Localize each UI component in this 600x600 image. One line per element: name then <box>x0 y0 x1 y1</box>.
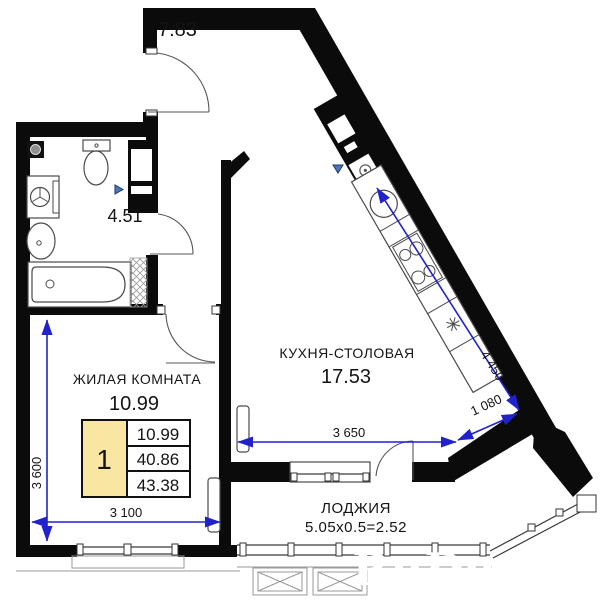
wall-bottom-left <box>16 545 77 557</box>
kitchen-name: КУХНЯ-СТОЛОВАЯ <box>279 345 414 361</box>
wall-bath-right-lower <box>146 255 158 308</box>
living-window-sill <box>72 556 184 568</box>
wall-kitchen-bottom-right <box>412 462 455 482</box>
glazing-post <box>528 524 535 531</box>
dim-3600-label: 3 600 <box>29 457 44 490</box>
vent-grate-icon <box>31 145 41 155</box>
floor-plan-drawing: 7.83 4.51 ЖИЛАЯ КОМНАТА 10.99 КУХНЯ-СТОЛ… <box>0 0 600 600</box>
riser-marker-icon <box>115 185 123 194</box>
wall-living-right <box>219 304 231 557</box>
wall-bath-top <box>16 122 147 137</box>
summary-table: 1 10.99 40.86 43.38 <box>82 420 190 497</box>
loggia-corner-post <box>577 495 596 512</box>
window-mullion <box>291 473 297 481</box>
loggia-calc: 5.05x0.5=2.52 <box>305 519 407 536</box>
wall-kitchen-bottom-left <box>231 462 291 482</box>
wall-hall-kitchen <box>221 160 231 306</box>
dim-3650-label: 3 650 <box>333 425 366 440</box>
bathroom-door-arc <box>158 214 193 254</box>
shaft-slot <box>131 186 152 194</box>
window-mullion <box>77 544 83 555</box>
bathroom-area-label: 4.51 <box>107 206 142 226</box>
shaft-opening <box>131 149 152 181</box>
duct-hatch <box>130 258 147 307</box>
living-room-area: 10.99 <box>109 393 159 415</box>
dim-3100-label: 3 100 <box>110 505 143 520</box>
bathroom-sink <box>27 223 55 259</box>
area-without-loggia-value: 40.86 <box>137 450 180 469</box>
wall-chamfer <box>448 410 536 482</box>
wall-corner-pier <box>533 418 593 497</box>
riser-marker-icon <box>333 165 343 173</box>
toilet <box>83 140 110 151</box>
kitchen-area: 17.53 <box>321 366 371 388</box>
living-door-jamb <box>157 306 165 314</box>
total-area-value: 43.38 <box>137 476 180 495</box>
watermark: RuDos.ru <box>352 547 597 592</box>
loggia-name: ЛОДЖИЯ <box>321 500 391 517</box>
window-mullion <box>124 544 131 555</box>
living-area-value: 10.99 <box>137 425 180 444</box>
window-mullion <box>363 473 369 481</box>
floor-plan: 7.83 4.51 ЖИЛАЯ КОМНАТА 10.99 КУХНЯ-СТОЛ… <box>0 0 600 600</box>
living-door-arc <box>166 314 215 362</box>
radiator <box>237 406 249 452</box>
window-mullion <box>172 544 178 555</box>
glazing-post <box>556 509 563 516</box>
living-room-name: ЖИЛАЯ КОМНАТА <box>73 371 202 387</box>
living-door-jamb <box>212 306 220 314</box>
toilet-bowl <box>84 151 108 185</box>
outdoor-unit <box>258 572 302 591</box>
window-mullion <box>333 473 339 481</box>
glazing-post <box>240 543 246 556</box>
wall-entry-left <box>143 8 157 53</box>
entry-door-jamb <box>146 48 157 54</box>
outdoor-units <box>253 568 367 595</box>
loggia-door-arc <box>376 441 413 476</box>
window-mullion <box>325 473 331 481</box>
radiator <box>208 478 220 532</box>
entry-door-arc <box>157 53 209 112</box>
entry-door-jamb <box>146 110 157 116</box>
hallway-area-label: 7.83 <box>158 19 197 41</box>
rooms-count: 1 <box>96 444 112 475</box>
glazing-post <box>336 543 342 556</box>
glazing-post <box>288 543 294 556</box>
dim-1080-label: 1 080 <box>468 391 504 418</box>
